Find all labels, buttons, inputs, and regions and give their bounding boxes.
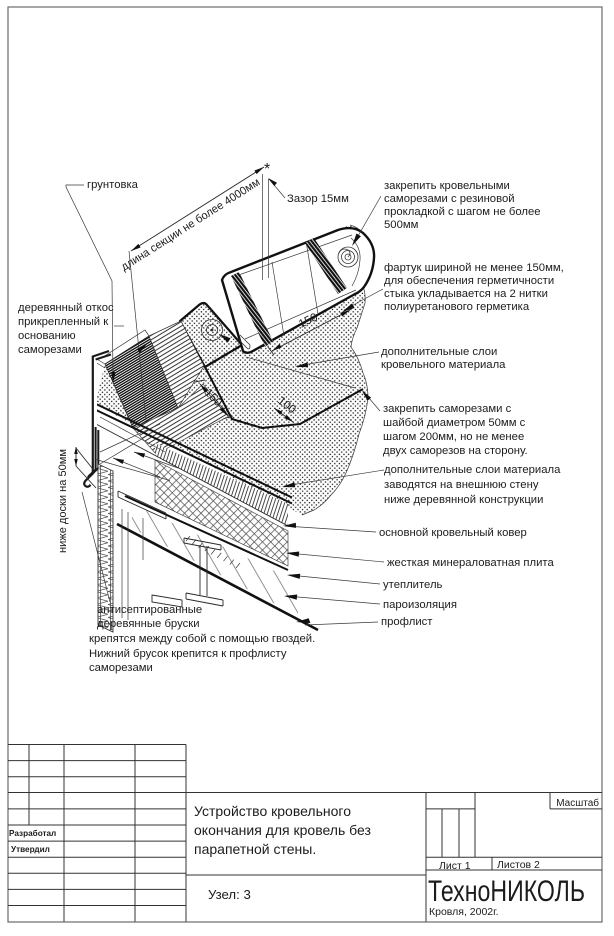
svg-text:прокладкой с шагом не более: прокладкой с шагом не более [384, 206, 541, 218]
svg-text:полиуретанового герметика: полиуретанового герметика [384, 301, 530, 313]
svg-text:крепятся между собой с помощью: крепятся между собой с помощью гвоздей. [89, 633, 315, 645]
svg-text:деревянные бруски: деревянные бруски [97, 618, 200, 630]
svg-text:саморезами с резиновой: саморезами с резиновой [384, 193, 515, 205]
svg-text:Лист 1: Лист 1 [439, 860, 471, 872]
svg-text:500мм: 500мм [384, 219, 418, 231]
svg-text:деревянный откос: деревянный откос [18, 302, 114, 314]
svg-text:заводятся на внешнюю стену: заводятся на внешнюю стену [384, 479, 539, 491]
svg-text:*: * [264, 161, 270, 178]
svg-text:антисептированные: антисептированные [97, 604, 202, 616]
svg-text:ниже деревянной конструкции: ниже деревянной конструкции [384, 494, 543, 506]
svg-text:шагом 200мм, но не менее: шагом 200мм, но не менее [383, 431, 524, 443]
svg-text:двух саморезов на сторону.: двух саморезов на сторону. [383, 445, 528, 457]
svg-text:фартук шириной не менее 150мм,: фартук шириной не менее 150мм, [384, 262, 564, 274]
svg-text:Нижний брусок крепится к профл: Нижний брусок крепится к профлисту [89, 648, 287, 660]
svg-text:стыка укладывается на 2 нитки: стыка укладывается на 2 нитки [384, 288, 548, 300]
svg-text:утеплитель: утеплитель [383, 579, 443, 591]
svg-text:Узел: 3: Узел: 3 [208, 887, 251, 902]
svg-text:основанию: основанию [18, 330, 76, 342]
svg-text:прикрепленный к: прикрепленный к [18, 316, 108, 328]
svg-text:Утвердил: Утвердил [11, 845, 50, 854]
svg-text:основной кровельный ковер: основной кровельный ковер [379, 527, 527, 539]
svg-text:ТехноНИКОЛЬ: ТехноНИКОЛЬ [428, 875, 585, 908]
svg-text:Кровля, 2002г.: Кровля, 2002г. [429, 906, 499, 918]
svg-text:окончания для кровель без: окончания для кровель без [194, 822, 371, 838]
svg-text:пароизоляция: пароизоляция [383, 599, 457, 611]
svg-text:Зазор 15мм: Зазор 15мм [287, 193, 349, 205]
svg-text:дополнительные слои материала: дополнительные слои материала [384, 464, 561, 476]
svg-text:закрепить саморезами с: закрепить саморезами с [383, 403, 512, 415]
svg-text:грунтовка: грунтовка [87, 179, 139, 191]
svg-text:Листов 2: Листов 2 [497, 859, 540, 871]
svg-text:саморезами: саморезами [89, 662, 153, 674]
svg-text:саморезами: саморезами [18, 344, 82, 356]
svg-text:Масштаб: Масштаб [556, 797, 599, 809]
svg-text:закрепить кровельными: закрепить кровельными [384, 180, 510, 192]
svg-text:профлист: профлист [381, 616, 432, 628]
svg-text:парапетной стены.: парапетной стены. [194, 841, 316, 857]
svg-text:ниже доски на 50мм: ниже доски на 50мм [57, 449, 69, 553]
svg-text:жесткая минераловатная плита: жесткая минераловатная плита [387, 557, 554, 569]
svg-text:Устройство кровельного: Устройство кровельного [194, 803, 351, 819]
svg-text:Разработал: Разработал [9, 828, 56, 838]
svg-text:кровельного материала: кровельного материала [381, 359, 506, 371]
svg-text:дополнительные слои: дополнительные слои [381, 346, 497, 358]
svg-text:шайбой диаметром 50мм с: шайбой диаметром 50мм с [383, 417, 526, 429]
svg-text:для обеспечения герметичности: для обеспечения герметичности [384, 275, 554, 287]
